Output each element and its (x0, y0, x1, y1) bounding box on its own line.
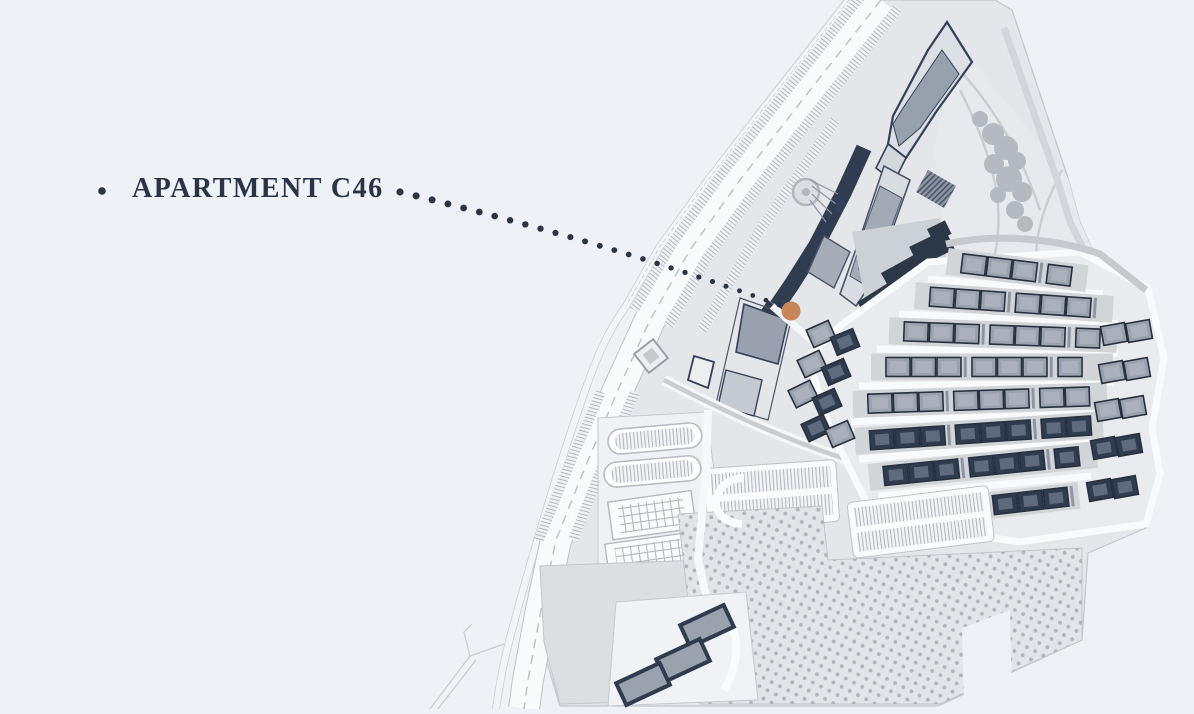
svg-text:APARTMENT C46: APARTMENT C46 (132, 173, 384, 204)
